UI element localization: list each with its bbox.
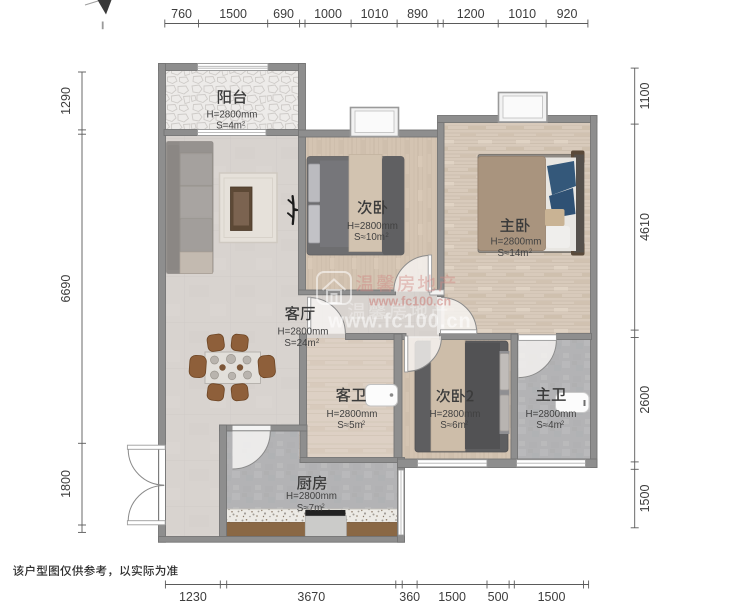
svg-text:S≈7m: S≈7m xyxy=(297,503,323,514)
svg-text:920: 920 xyxy=(557,7,578,21)
svg-text:S≈6m: S≈6m xyxy=(440,420,466,431)
svg-text:1500: 1500 xyxy=(638,485,652,513)
svg-text:H=2800mm: H=2800mm xyxy=(491,237,542,248)
svg-text:1800: 1800 xyxy=(59,470,73,498)
svg-text:890: 890 xyxy=(407,7,428,21)
svg-text:1010: 1010 xyxy=(508,7,536,21)
svg-text:1500: 1500 xyxy=(219,7,247,21)
svg-text:S=24m: S=24m xyxy=(284,338,315,349)
svg-text:H=2800mm: H=2800mm xyxy=(286,491,337,502)
svg-text:1500: 1500 xyxy=(438,590,466,604)
svg-text:H=2800mm: H=2800mm xyxy=(347,221,398,232)
svg-text:1290: 1290 xyxy=(59,87,73,115)
svg-text:6690: 6690 xyxy=(59,275,73,303)
svg-text:H=2800mm: H=2800mm xyxy=(327,409,378,420)
svg-text:H=2800mm: H=2800mm xyxy=(278,327,329,338)
svg-text:H=2800mm: H=2800mm xyxy=(526,409,577,420)
svg-text:S=4m: S=4m xyxy=(216,121,242,132)
svg-text:H=2800mm: H=2800mm xyxy=(430,409,481,420)
svg-text:1100: 1100 xyxy=(638,83,652,110)
svg-text:690: 690 xyxy=(273,7,294,21)
svg-text:S≈14m: S≈14m xyxy=(498,248,529,259)
svg-text:4610: 4610 xyxy=(638,213,652,241)
svg-text:S≈4m: S≈4m xyxy=(536,420,562,431)
svg-text:H=2800mm: H=2800mm xyxy=(207,110,258,121)
svg-text:1010: 1010 xyxy=(361,7,389,21)
svg-text:360: 360 xyxy=(399,590,420,604)
svg-text:1500: 1500 xyxy=(538,590,566,604)
svg-text:760: 760 xyxy=(171,7,192,21)
svg-text:500: 500 xyxy=(488,590,509,604)
svg-text:3670: 3670 xyxy=(297,590,325,604)
svg-text:S≈5m: S≈5m xyxy=(337,420,363,431)
svg-text:1230: 1230 xyxy=(179,590,207,604)
svg-text:1200: 1200 xyxy=(457,7,485,21)
svg-text:1000: 1000 xyxy=(314,7,342,21)
svg-text:www.fc100.cn: www.fc100.cn xyxy=(327,311,472,333)
svg-text:S≈10m: S≈10m xyxy=(354,232,385,243)
svg-text:www.fc100.cn: www.fc100.cn xyxy=(368,295,451,309)
svg-text:2600: 2600 xyxy=(638,386,652,414)
